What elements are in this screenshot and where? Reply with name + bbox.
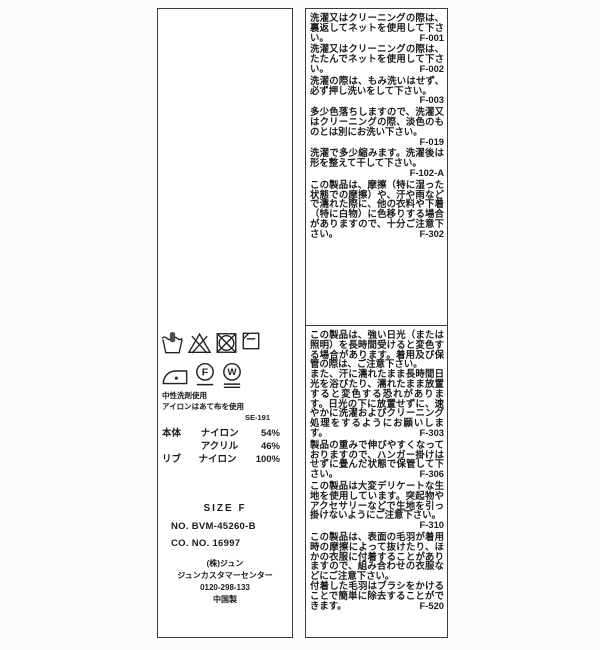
dry-clean-letter: F	[202, 368, 208, 379]
instruction-text: 洗濯で多少縮みます。洗濯後は形を整えて干して下さい。	[310, 147, 444, 168]
composition-part: リブ	[162, 453, 199, 466]
care-instruction: 洗濯で多少縮みます。洗濯後は形を整えて干して下さい。 F-102-A	[310, 148, 444, 177]
care-instruction: 洗濯の際は、もみ洗いはせず、必ず押し洗いをして下さい。 F-003	[310, 76, 444, 105]
do-not-tumble-dry-icon	[215, 332, 238, 354]
wet-clean-letter: W	[228, 367, 237, 378]
care-instruction: この製品は大変デリケートな生地を使用しています。突起物やアクセサリーなどで生地を…	[310, 481, 444, 530]
instruction-code: F-102-A	[410, 168, 444, 178]
company-name: (株)ジュン	[158, 558, 292, 570]
iron-low-heat-icon	[162, 365, 188, 386]
composition-percent: 54%	[261, 427, 280, 440]
care-instruction: この製品は、摩擦（特に湿った状態での摩擦）や、汗や雨などで濡れた際に、他の衣料や…	[310, 180, 444, 239]
label-code: SE-191	[245, 413, 270, 422]
composition-row: リブ ナイロン 100%	[162, 453, 280, 466]
instruction-code: F-019	[420, 137, 445, 147]
care-instruction: 洗濯又はクリーニングの際は、裏返してネットを使用して下さい。 F-001	[310, 13, 444, 42]
care-label-left-panel: F W 中性洗剤使用 アイロンはあて布を使用 SE-191 本体 ナイロン 54…	[157, 8, 293, 638]
washing-instructions-top: 洗濯又はクリーニングの際は、裏返してネットを使用して下さい。 F-001 洗濯又…	[306, 9, 447, 326]
instruction-code: F-310	[420, 520, 445, 530]
care-instruction: この製品は、強い日光（または照明）を長時間受けると変色する場合があります。着用及…	[310, 330, 444, 438]
composition-material: ナイロン	[201, 427, 261, 440]
instruction-text: 洗濯の際は、もみ洗いはせず、必ず押し洗いをして下さい。	[310, 75, 444, 96]
product-number: NO. BVM-45260-B	[171, 521, 256, 532]
hand-wash-icon	[161, 332, 184, 354]
care-instruction: 製品の重みで伸びやすくなっておりますので、ハンガー掛けはせずに畳んだ状態で保管し…	[310, 440, 444, 479]
co-number: CO. NO. 16997	[171, 538, 240, 549]
care-symbols-row-2: F W	[162, 362, 242, 389]
instruction-text: この製品は大変デリケートな生地を使用しています。突起物やアクセサリーなどで生地を…	[310, 480, 444, 520]
composition-row: 本体 ナイロン 54%	[162, 427, 280, 440]
care-label-sheet: { "left_label": { "care_symbols": [ {"na…	[0, 0, 600, 650]
care-note-iron-cloth: アイロンはあて布を使用	[162, 402, 244, 413]
care-label-right-panel: 洗濯又はクリーニングの際は、裏返してネットを使用して下さい。 F-001 洗濯又…	[305, 8, 448, 638]
country-of-origin: 中国製	[158, 594, 292, 606]
customer-center: ジュンカスタマーセンター	[158, 570, 292, 582]
instruction-code: F-520	[420, 601, 445, 611]
composition-part	[162, 440, 201, 453]
instruction-code: F-303	[420, 428, 445, 438]
instruction-code: F-306	[420, 469, 445, 479]
composition-percent: 46%	[261, 440, 280, 453]
composition-material: ナイロン	[199, 453, 256, 466]
instruction-text: 多少色落ちしますので、洗濯又はクリーニングの際、淡色のものとは別にお洗い下さい。	[310, 106, 444, 137]
company-block: (株)ジュン ジュンカスタマーセンター 0120-298-133 中国製	[158, 558, 292, 606]
composition-table: 本体 ナイロン 54% アクリル 46% リブ ナイロン 100%	[162, 427, 280, 466]
size-label: SIZE F	[158, 503, 292, 514]
care-note-detergent: 中性洗剤使用	[162, 391, 244, 402]
care-notes: 中性洗剤使用 アイロンはあて布を使用	[162, 391, 244, 412]
composition-part: 本体	[162, 427, 201, 440]
flat-dry-in-shade-icon	[242, 332, 260, 350]
phone-number: 0120-298-133	[158, 582, 292, 594]
composition-percent: 100%	[256, 453, 280, 466]
care-instruction: 洗濯又はクリーニングの際は、たたんでネットを使用して下さい。 F-002	[310, 44, 444, 73]
care-instruction: この製品は、表面の毛羽が着用時の摩擦によって抜けたり、ほかの衣服に付着することが…	[310, 532, 444, 610]
instruction-text: この製品は、強い日光（または照明）を長時間受けると変色する場合があります。着用及…	[310, 329, 444, 438]
wet-clean-very-gentle-icon: W	[222, 362, 242, 389]
care-symbols-row-1	[161, 332, 260, 354]
instruction-code: F-002	[420, 64, 445, 74]
dry-clean-petroleum-icon: F	[195, 362, 215, 389]
care-instruction: 多少色落ちしますので、洗濯又はクリーニングの際、淡色のものとは別にお洗い下さい。…	[310, 107, 444, 146]
instruction-code: F-003	[420, 95, 445, 105]
instruction-code: F-302	[420, 229, 445, 239]
composition-row: アクリル 46%	[162, 440, 280, 453]
washing-instructions-bottom: この製品は、強い日光（または照明）を長時間受けると変色する場合があります。着用及…	[306, 326, 447, 610]
instruction-text: この製品は、表面の毛羽が着用時の摩擦によって抜けたり、ほかの衣服に付着することが…	[310, 531, 444, 611]
composition-material: アクリル	[201, 440, 261, 453]
do-not-bleach-icon	[188, 332, 211, 354]
instruction-code: F-001	[420, 33, 445, 43]
